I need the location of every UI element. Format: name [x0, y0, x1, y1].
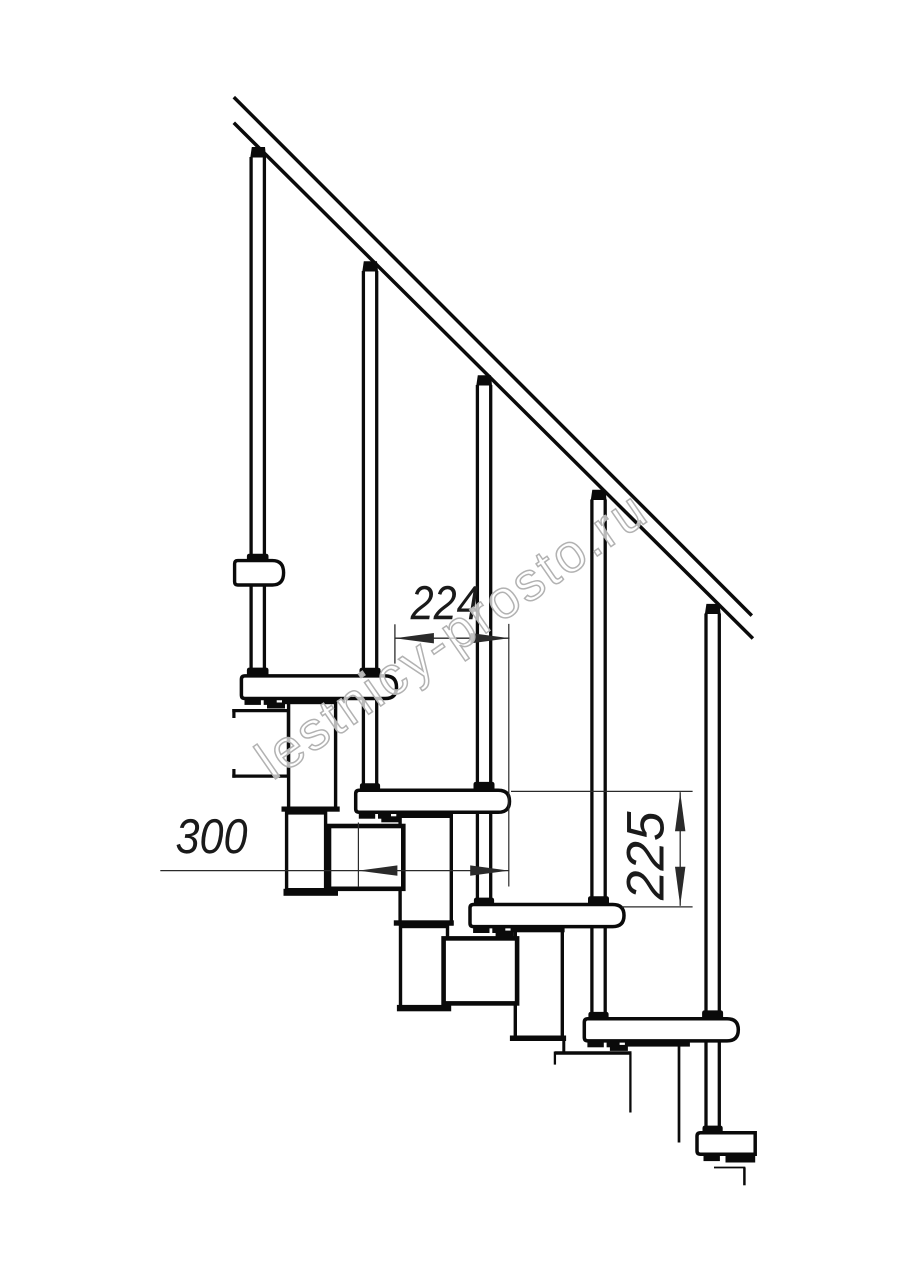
svg-text:300: 300	[176, 810, 248, 864]
svg-text:225: 225	[617, 811, 676, 901]
